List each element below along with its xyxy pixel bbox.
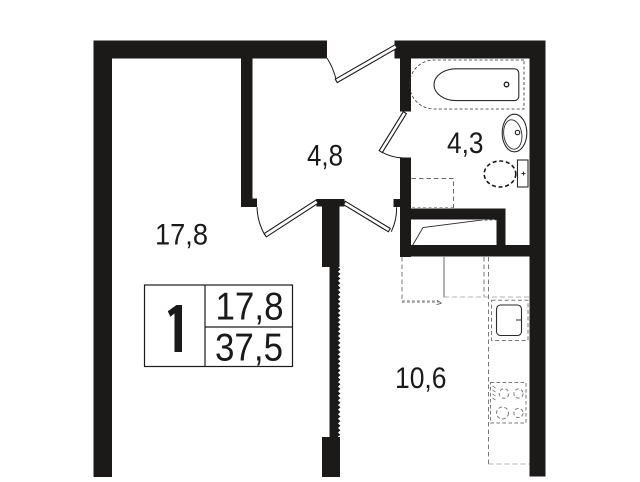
- svg-text:37,5: 37,5: [215, 326, 283, 369]
- svg-text:17,8: 17,8: [155, 219, 208, 252]
- svg-text:4,8: 4,8: [307, 140, 343, 173]
- svg-text:17,8: 17,8: [216, 286, 284, 329]
- svg-text:10,6: 10,6: [395, 362, 447, 395]
- svg-text:4,3: 4,3: [447, 127, 484, 160]
